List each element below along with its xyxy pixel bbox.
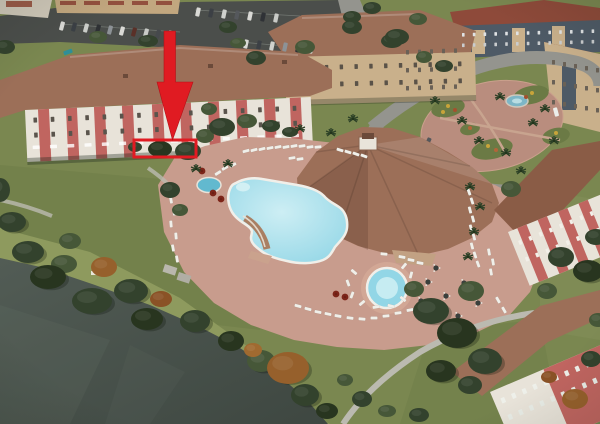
vignette (0, 0, 600, 424)
screenshot-root (0, 0, 600, 424)
aerial-photo (0, 0, 600, 424)
